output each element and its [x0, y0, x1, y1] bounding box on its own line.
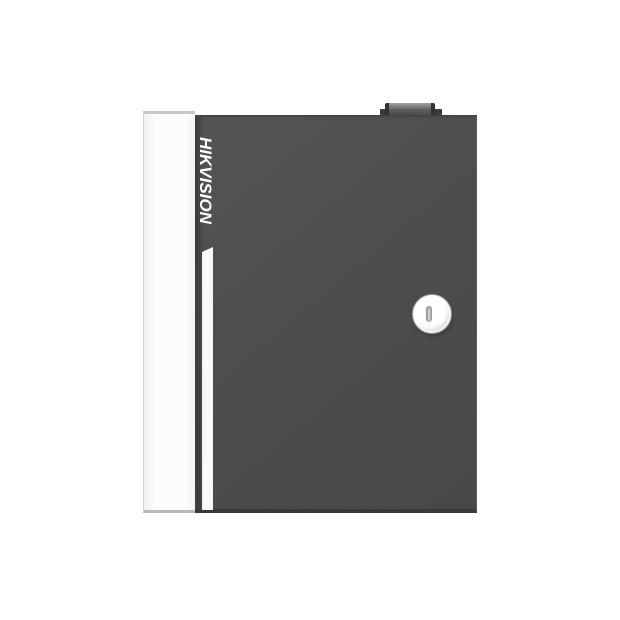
enclosure-side-panel — [143, 111, 195, 513]
keyhole-icon — [426, 306, 432, 322]
product-photo: HIKVISION — [0, 0, 620, 620]
brand-logo: HIKVISION — [196, 137, 215, 224]
accent-stripe — [202, 247, 213, 510]
door-lock — [412, 294, 452, 334]
